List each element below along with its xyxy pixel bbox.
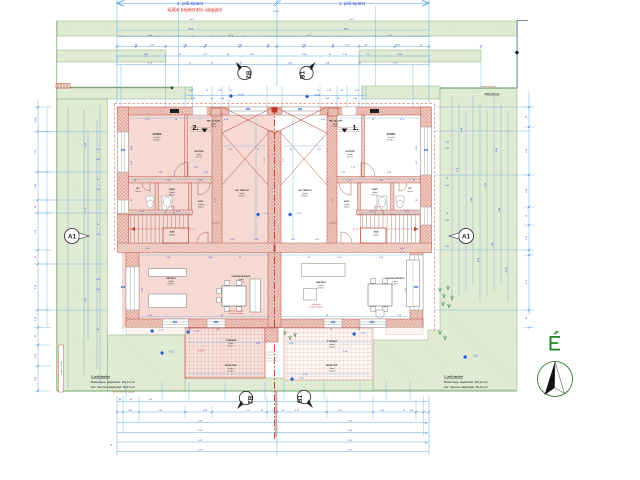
svg-text:NAPPALI: NAPPALI: [166, 277, 176, 280]
svg-text:(járda): (járda): [169, 191, 175, 194]
svg-text:SZOBA: SZOBA: [387, 133, 396, 136]
svg-text:ELŐTÉR: ELŐTÉR: [346, 150, 355, 153]
svg-text:GK. TÁROLÓ: GK. TÁROLÓ: [298, 189, 312, 192]
svg-text:külön bejelentés alapján!: külön bejelentés alapján!: [167, 8, 222, 14]
svg-text:ELŐTÉR: ELŐTÉR: [195, 150, 204, 153]
svg-text:(járda): (járda): [196, 153, 202, 156]
svg-text:18,60 m²: 18,60 m²: [301, 195, 309, 198]
svg-text:11,84 m²: 11,84 m²: [391, 283, 399, 286]
svg-text:1. jelű épület: 1. jelű épület: [444, 375, 463, 379]
svg-text:3,50 m²: 3,50 m²: [228, 345, 234, 348]
svg-text:KAM: KAM: [170, 231, 175, 234]
svg-text:A1: A1: [68, 234, 77, 241]
svg-text:11,58 m²: 11,58 m²: [228, 370, 235, 373]
svg-text:hasznos helyiség: hasznos helyiség: [480, 86, 495, 88]
svg-text:1. jelű épület: 1. jelű épület: [339, 1, 366, 6]
svg-text:16: 16: [425, 433, 427, 435]
svg-text:(járda): (járda): [344, 203, 350, 206]
svg-text:+0,15: +0,15: [158, 330, 164, 332]
svg-text:(járda): (járda): [198, 203, 204, 206]
svg-text:meglévő kerítés: meglévő kerítés: [60, 361, 63, 375]
svg-text:hangzáró légtér: hangzáró légtér: [309, 306, 323, 309]
svg-text:- terasz feletti tető alapján: - terasz feletti tető alapján: [112, 391, 135, 394]
svg-text:KONYHA+ÉTKEZŐ: KONYHA+ÉTKEZŐ: [232, 275, 251, 278]
svg-text:B1: B1: [297, 394, 304, 402]
svg-text:-0,28: -0,28: [299, 378, 305, 380]
svg-text:KAM: KAM: [374, 231, 379, 234]
svg-text:FED. ELŐLÉP: FED. ELŐLÉP: [329, 120, 343, 123]
svg-text:GARD.: GARD.: [169, 188, 176, 191]
svg-text:2. jelű épület: 2. jelű épület: [91, 375, 110, 379]
svg-text:11,58 m²: 11,58 m²: [329, 370, 336, 373]
svg-text:(járda): (járda): [318, 284, 324, 287]
svg-text:GK. TÁROLÓ: GK. TÁROLÓ: [235, 189, 249, 192]
svg-text:GARD.: GARD.: [372, 188, 379, 191]
svg-text:3,50 m²: 3,50 m²: [329, 346, 335, 349]
svg-text:18,60 m²: 18,60 m²: [238, 195, 246, 198]
svg-text:BURK.TER.: BURK.TER.: [225, 365, 237, 367]
svg-text:26,30 m²: 26,30 m²: [317, 287, 325, 290]
svg-text:(járda): (járda): [238, 278, 244, 281]
svg-text:11,98 m²: 11,98 m²: [387, 139, 395, 142]
svg-text:3,57 m²: 3,57 m²: [347, 156, 354, 159]
svg-text:F.TERASZ: F.TERASZ: [327, 340, 338, 343]
svg-text:(járda): (járda): [168, 280, 174, 283]
svg-text:10,48: 10,48: [506, 267, 508, 273]
svg-text:hangzáró légtér: hangzáró légtér: [229, 312, 243, 315]
svg-text:(járda): (járda): [210, 123, 216, 126]
svg-text:FED. ELŐLÉP: FED. ELŐLÉP: [207, 120, 221, 123]
svg-text:Bruttó beép. alapterület: 115,: Bruttó beép. alapterület: 115,11 m2: [91, 380, 135, 384]
svg-text:A1: A1: [462, 234, 471, 241]
svg-text:B1: B1: [300, 70, 307, 78]
svg-text:76: 76: [425, 443, 427, 445]
svg-text:22,09 m²: 22,09 m²: [167, 283, 175, 286]
svg-text:NAPPALI: NAPPALI: [316, 281, 326, 284]
svg-text:(járda): (járda): [239, 192, 245, 195]
svg-text:(járda): (járda): [347, 153, 353, 156]
svg-text:KONYHA+ÉTKEZŐ: KONYHA+ÉTKEZŐ: [386, 277, 405, 280]
svg-text:WC: WC: [408, 188, 412, 190]
svg-text:(járda): (járda): [372, 191, 378, 194]
svg-text:+0,20: +0,20: [295, 213, 301, 215]
svg-text:458,55m2: 458,55m2: [484, 93, 499, 97]
svg-text:(járda): (járda): [169, 234, 175, 237]
svg-text:90: 90: [425, 423, 427, 425]
svg-text:1.: 1.: [352, 123, 358, 132]
svg-text:(járda): (járda): [302, 192, 308, 195]
svg-text:Bruttó beép. alapterület: 115,: Bruttó beép. alapterület: 115,11 m2: [444, 380, 488, 384]
svg-text:+0,00: +0,00: [238, 93, 245, 96]
svg-text:2. jelű épület: 2. jelű épület: [177, 1, 204, 6]
svg-text:1,60 m²: 1,60 m²: [135, 190, 142, 193]
svg-text:BURK.TER.: BURK.TER.: [326, 365, 338, 367]
svg-text:SZOBA: SZOBA: [153, 133, 162, 136]
svg-text:-0,03: -0,03: [195, 331, 201, 333]
svg-text:(járda): (járda): [332, 123, 338, 126]
svg-text:18,34: 18,34: [273, 11, 279, 13]
svg-text:2,43 m²: 2,43 m²: [210, 125, 217, 128]
svg-text:B2: B2: [245, 71, 252, 79]
svg-text:(járda): (járda): [373, 234, 379, 237]
svg-text:+0,15: +0,15: [360, 333, 366, 335]
svg-text:+0,00: +0,00: [314, 94, 321, 97]
svg-text:2.: 2.: [192, 123, 198, 132]
svg-text:1,60 m²: 1,60 m²: [407, 190, 414, 193]
svg-text:KÖZL.: KÖZL.: [344, 200, 350, 203]
svg-text:-0,03: -0,03: [472, 355, 478, 358]
svg-text:KÖZL.: KÖZL.: [198, 200, 204, 203]
svg-text:WC: WC: [136, 188, 140, 190]
svg-text:10,68: 10,68: [35, 117, 37, 123]
svg-text:F.TERASZ: F.TERASZ: [226, 339, 237, 342]
svg-text:-0,03: -0,03: [168, 351, 174, 354]
svg-text:(járda): (járda): [392, 280, 398, 283]
svg-text:burkolat: burkolat: [198, 350, 205, 353]
svg-text:B2: B2: [246, 396, 253, 404]
svg-text:4,80 m²: 4,80 m²: [344, 206, 351, 209]
svg-text:4,80 m²: 4,80 m²: [198, 206, 205, 209]
svg-text:3,57 m²: 3,57 m²: [196, 156, 203, 159]
svg-text:Fsz. hasznos alapterület: 83,3: Fsz. hasznos alapterület: 83,31 m2: [444, 385, 488, 389]
svg-text:Fsz. hasznos alapterület: 83,2: Fsz. hasznos alapterület: 83,27 m2: [91, 385, 135, 389]
svg-text:+0,20: +0,20: [263, 213, 269, 215]
svg-text:11,98 m²: 11,98 m²: [153, 139, 161, 142]
